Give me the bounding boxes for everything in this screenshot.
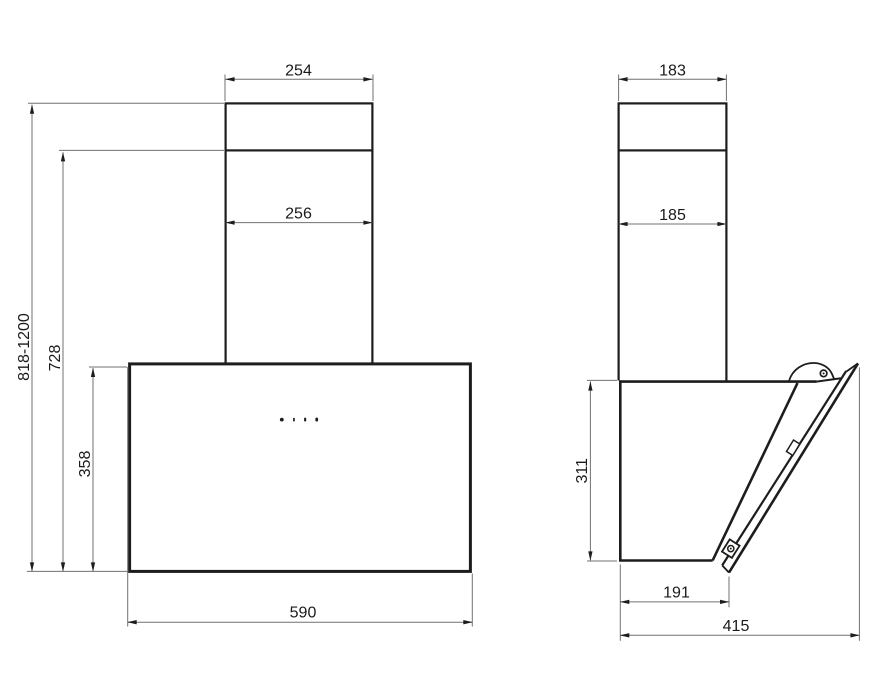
dim-front-chimney-top-width: 254 <box>225 62 373 101</box>
bracket-screw-pin <box>730 548 732 550</box>
dim-side-chimney-top-depth: 183 <box>619 62 727 101</box>
glass-outer-edge <box>729 363 858 572</box>
dim-label-front-body-height: 358 <box>77 451 94 478</box>
dim-label-front-chimney-width: 256 <box>285 206 312 223</box>
dim-label-overall-height-range: 818-1200 <box>16 313 33 381</box>
side-body-front-angled-edge <box>713 383 798 561</box>
control-dot <box>293 418 295 422</box>
dim-label-front-body-width: 590 <box>290 604 317 621</box>
dimension-drawing: 254 256 818-1200 728 358 <box>0 0 875 700</box>
control-dot <box>315 418 318 422</box>
side-body <box>619 380 817 561</box>
dim-label-side-body-height: 311 <box>574 458 591 484</box>
dim-label-side-overall-depth: 415 <box>723 618 750 635</box>
dim-front-body-height: 358 <box>77 367 127 571</box>
dim-label-side-chimney-depth: 185 <box>659 207 686 224</box>
drawing-canvas: 254 256 818-1200 728 358 <box>0 0 875 700</box>
glass-clip-detail <box>787 440 800 456</box>
side-glass-panel <box>722 363 858 572</box>
glass-inner-edge <box>722 371 846 565</box>
dim-label-front-chimney-top-width: 254 <box>285 62 312 79</box>
dim-label-side-chimney-top-depth: 183 <box>659 62 686 79</box>
hinge-base <box>817 378 842 381</box>
glass-bottom-cap <box>722 565 729 572</box>
hinge-pivot-pin <box>823 372 825 374</box>
hinge-arm <box>789 363 834 381</box>
dim-label-side-bottom-depth: 191 <box>663 585 690 602</box>
control-dot <box>304 418 306 422</box>
dim-front-body-width: 590 <box>128 367 473 627</box>
hinge-assembly <box>789 363 841 382</box>
control-buttons <box>280 418 318 422</box>
dim-side-chimney-depth: 185 <box>619 207 727 224</box>
dim-side-body-height: 311 <box>574 380 617 561</box>
front-chimney-upper-section <box>226 103 373 150</box>
side-chimney-upper-section <box>619 103 727 150</box>
dim-label-chimney-joint-height: 728 <box>47 345 64 372</box>
dim-side-bottom-depth: 191 <box>620 565 729 641</box>
front-view: 254 256 818-1200 728 358 <box>16 62 473 626</box>
control-dot <box>280 418 284 422</box>
side-view: 183 185 311 191 415 <box>574 62 859 641</box>
dim-front-chimney-width: 256 <box>226 206 373 223</box>
dim-chimney-joint-height: 728 <box>47 150 224 571</box>
dim-overall-height-range: 818-1200 <box>16 103 224 571</box>
front-body-glass-panel <box>130 364 471 572</box>
